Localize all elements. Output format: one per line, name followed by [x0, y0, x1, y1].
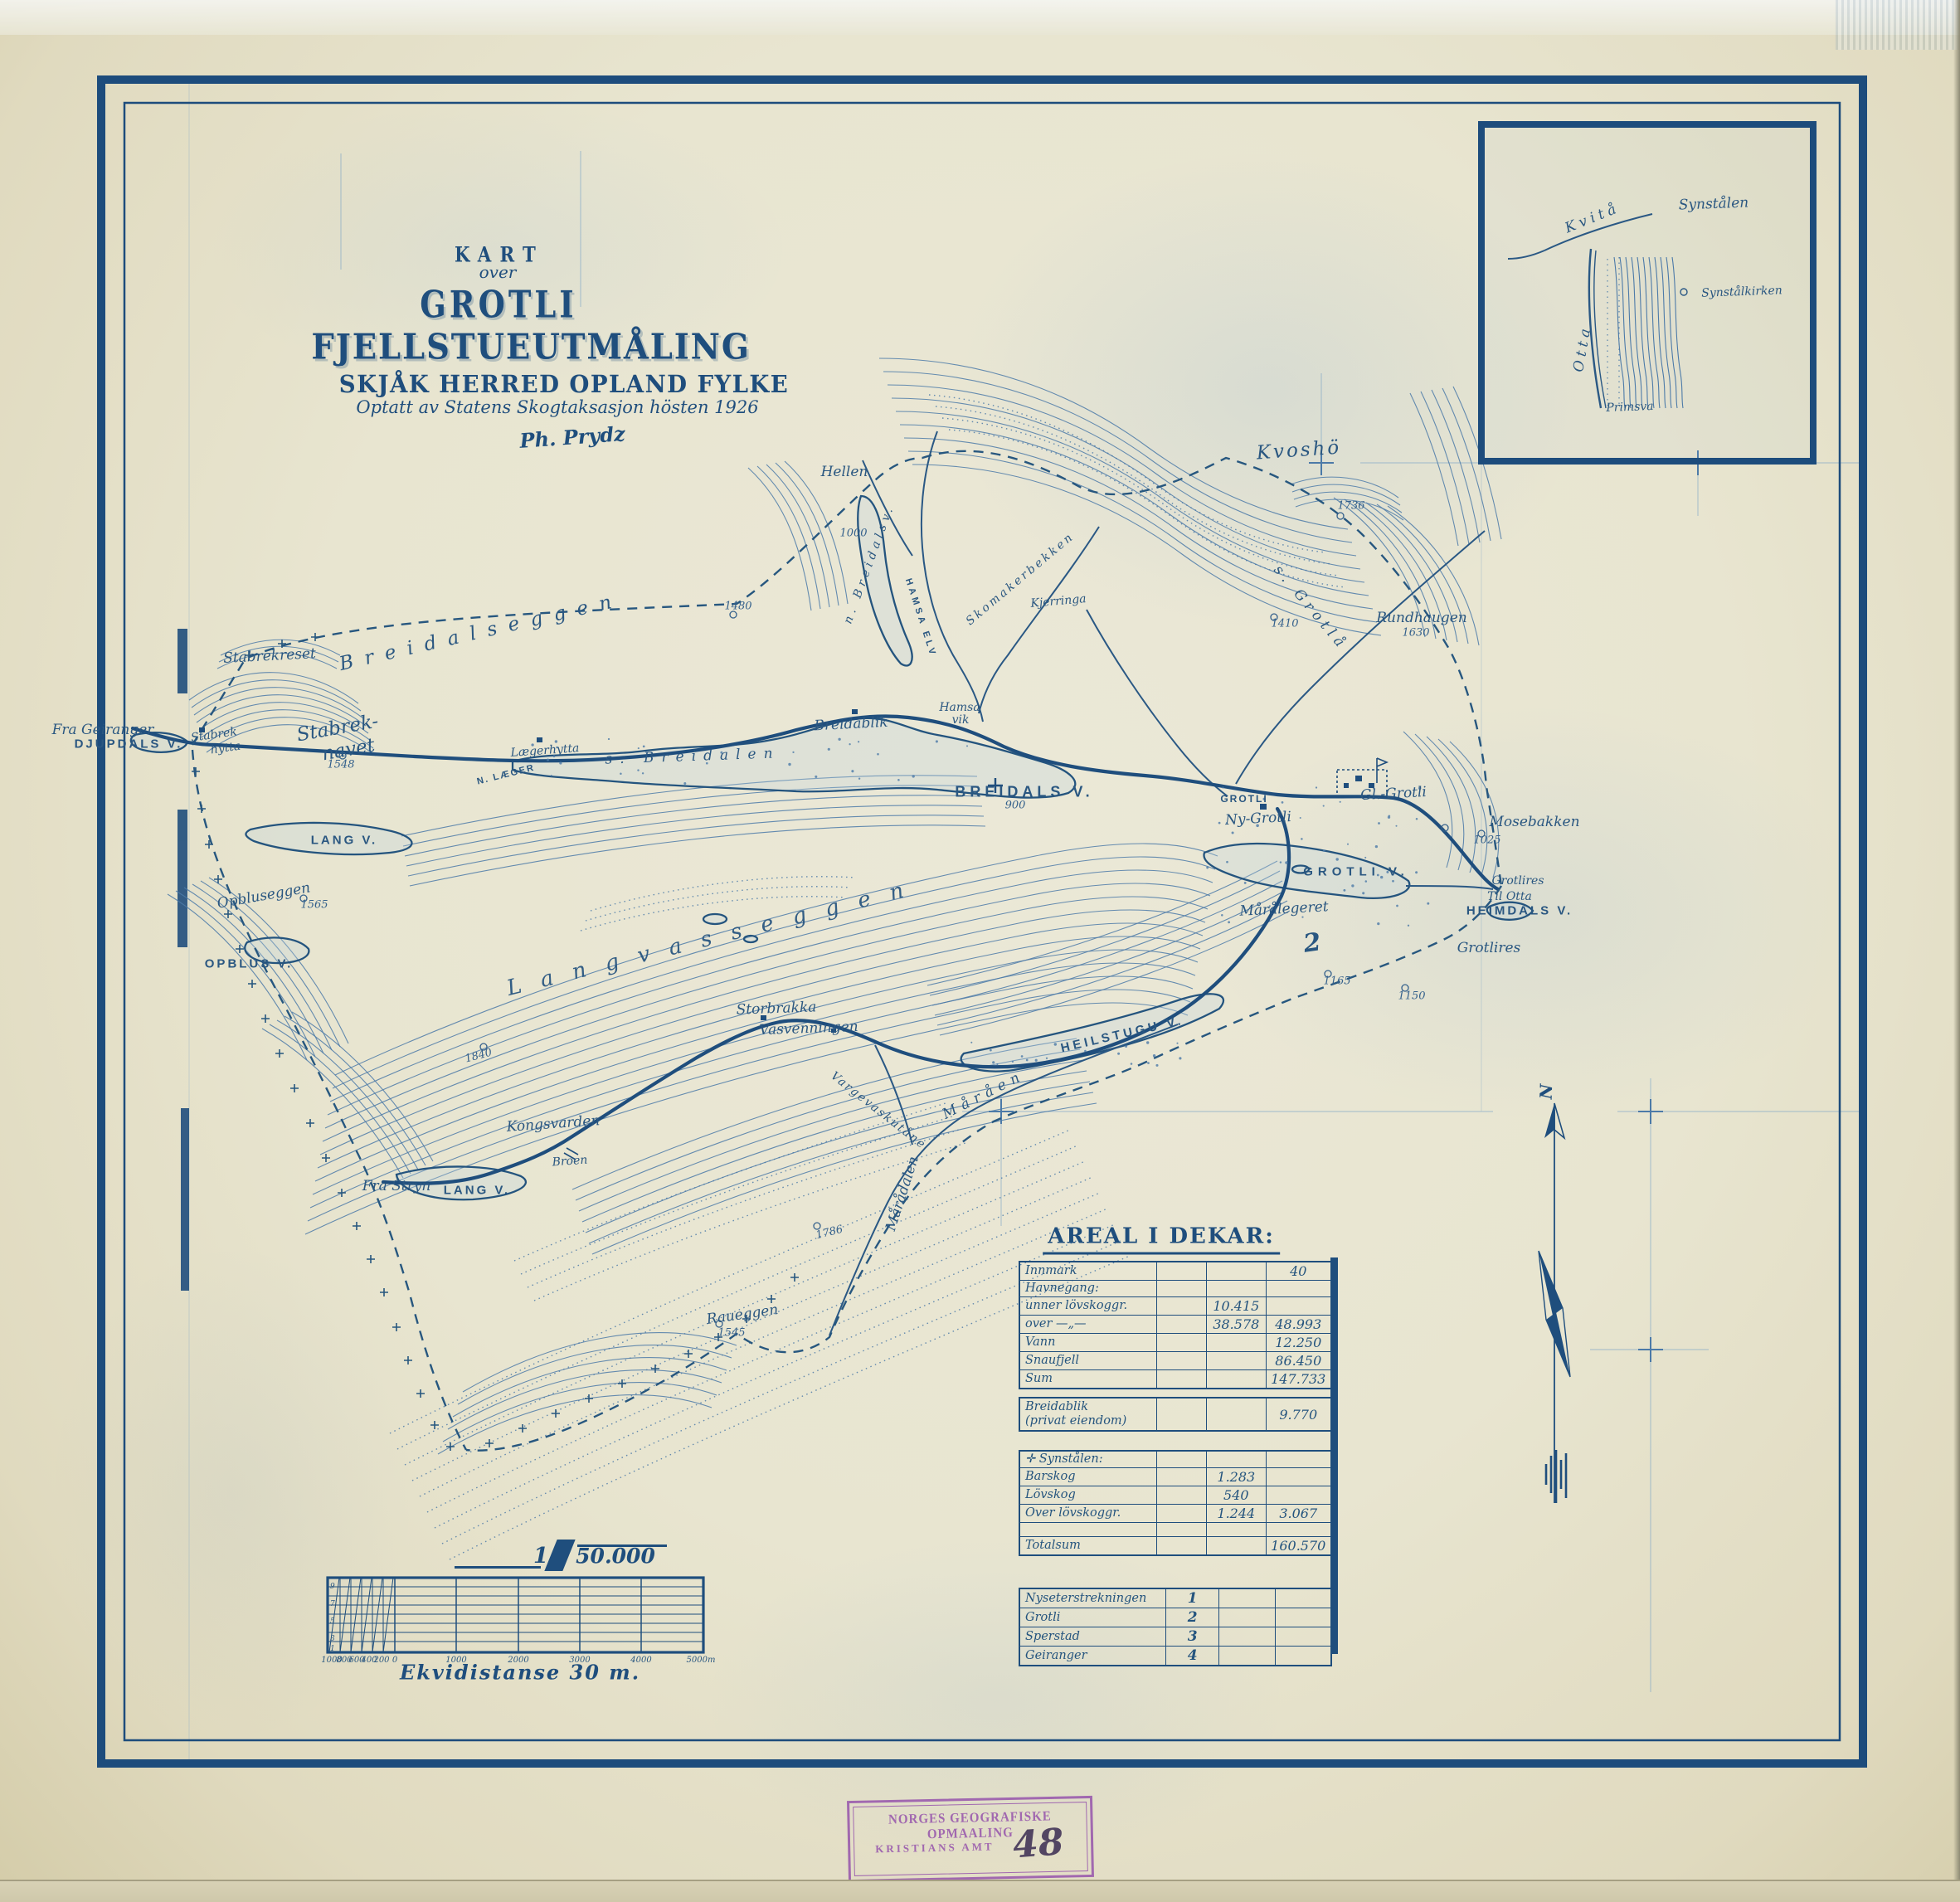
- map-label: 1630: [1402, 627, 1429, 640]
- table-label: Totalsum: [1019, 1536, 1156, 1555]
- table-label: Sum: [1019, 1369, 1156, 1389]
- table-label: ✛ Synstålen:: [1019, 1451, 1156, 1467]
- table-value: 48.993: [1266, 1315, 1331, 1333]
- table-value: [1156, 1467, 1206, 1486]
- table-value: [1275, 1647, 1331, 1666]
- map-label: Rundhaugen: [1376, 610, 1467, 626]
- scale-tick: 5000m: [687, 1656, 716, 1665]
- table-value: 38.578: [1207, 1315, 1266, 1333]
- map-label: Broen: [552, 1154, 588, 1170]
- map-label: 1545: [717, 1327, 745, 1340]
- table-label: [1019, 1522, 1156, 1536]
- scale-tick: 1: [330, 1645, 335, 1653]
- table-value: 12.250: [1266, 1333, 1331, 1351]
- map-label: Grotlires: [1491, 874, 1544, 888]
- table-value: [1156, 1281, 1206, 1297]
- map-label: OPBLUS V.: [205, 957, 293, 971]
- scale-tick: 5: [330, 1617, 335, 1626]
- table-value: [1207, 1281, 1266, 1297]
- table-value: [1219, 1608, 1276, 1627]
- map-label: DJUPDALS V.: [75, 737, 183, 752]
- map-subtitle-survey: Optatt av Statens Skogtaksasjon hösten 1…: [356, 397, 758, 417]
- boundary-west: [192, 750, 466, 1450]
- table-value: [1207, 1351, 1266, 1369]
- map-label: 1165: [1323, 975, 1350, 988]
- table-value: [1207, 1536, 1266, 1555]
- table-value: [1219, 1647, 1276, 1666]
- areal-table-title: AREAL I DEKAR:: [1043, 1224, 1280, 1255]
- scale-tick: 9: [330, 1583, 335, 1591]
- archive-stamp: NORGES GEOGRAFISKE OPMAALING KRISTIANS A…: [847, 1796, 1094, 1882]
- areal-table-synstaalen: ✛ Synstålen:Barskog1.283Lövskog540Over l…: [1019, 1450, 1332, 1556]
- map-label: Hellen: [821, 464, 868, 480]
- paper-edge-right: [1953, 0, 1960, 1902]
- map-label: 1150: [1398, 990, 1425, 1003]
- map-label: GROTLI V.: [1303, 865, 1409, 879]
- table-label: Geiranger: [1019, 1647, 1166, 1666]
- table-value: 3.067: [1266, 1504, 1331, 1522]
- table-value: [1219, 1588, 1276, 1608]
- table-label: Barskog: [1019, 1467, 1156, 1486]
- table-label: Grotli: [1019, 1608, 1166, 1627]
- map-label: Storbrakka: [736, 999, 816, 1018]
- table-value: [1156, 1296, 1206, 1315]
- table-value: 10.415: [1207, 1296, 1266, 1315]
- map-label: Mosebakken: [1489, 814, 1579, 830]
- scale-ratio-rule-right: [577, 1544, 667, 1547]
- map-label: 1736: [1337, 500, 1364, 513]
- table-label: Vann: [1019, 1333, 1156, 1351]
- table-value: [1156, 1451, 1206, 1467]
- scale-tick: 7: [330, 1600, 335, 1608]
- stamp-number: 48: [1011, 1821, 1065, 1866]
- map-label: Grotlires: [1457, 940, 1521, 956]
- map-label: 1000: [839, 528, 867, 540]
- map-label: Fra Stryn: [362, 1178, 431, 1194]
- map-label: Hamsa: [939, 701, 980, 714]
- boundary-north: [192, 451, 1501, 886]
- map-label: Primsva: [1606, 400, 1654, 415]
- table-value: [1207, 1369, 1266, 1389]
- map-label: LANG V.: [444, 1184, 510, 1198]
- table-accent-bar: [1330, 1257, 1338, 1654]
- scale-ratio-denominator: 50.000: [576, 1544, 655, 1569]
- map-title-over: over: [479, 262, 517, 282]
- table-value: 86.450: [1266, 1351, 1331, 1369]
- north-arrow: [1539, 1103, 1570, 1503]
- river-hamsa: [922, 431, 983, 722]
- paper-edge-bottom: [0, 1880, 1960, 1902]
- map-label: Vasvenningen: [759, 1019, 858, 1039]
- scale-ratio-rule-left: [455, 1566, 541, 1569]
- table-value: [1156, 1333, 1206, 1351]
- map-label: 900: [1005, 800, 1026, 812]
- table-value: [1156, 1398, 1206, 1431]
- table-value: [1156, 1369, 1206, 1389]
- table-value: [1275, 1627, 1331, 1647]
- table-value: 1: [1166, 1588, 1219, 1608]
- map-label: 1548: [327, 759, 354, 771]
- map-label: Synstålen: [1679, 195, 1749, 214]
- map-label: BREIDALS V.: [955, 784, 1093, 801]
- table-label: Nyseterstrekningen: [1019, 1588, 1166, 1608]
- areal-table-legend: Nyseterstrekningen1Grotli2Sperstad3Geira…: [1019, 1588, 1332, 1666]
- table-value: [1207, 1451, 1266, 1467]
- lake-heilstuguvatn: [961, 994, 1223, 1071]
- map-label: 2: [1301, 927, 1323, 959]
- map-label: Ny-Grotli: [1225, 809, 1292, 829]
- map-label: 1565: [300, 899, 328, 912]
- table-value: [1219, 1627, 1276, 1647]
- table-value: [1266, 1467, 1331, 1486]
- table-label: unner lövskoggr.: [1019, 1296, 1156, 1315]
- table-value: [1266, 1486, 1331, 1504]
- table-label: over —„—: [1019, 1315, 1156, 1333]
- map-label: GROTLI: [1220, 793, 1267, 805]
- table-value: [1275, 1608, 1331, 1627]
- table-value: [1207, 1398, 1266, 1431]
- map-label: LANG V.: [311, 834, 377, 848]
- river-otta-outlet: [1406, 886, 1493, 889]
- map-label: 1480: [724, 601, 751, 613]
- table-label: Lövskog: [1019, 1486, 1156, 1504]
- areal-table-main: Innmark40Havnegang:unner lövskoggr.10.41…: [1019, 1261, 1332, 1389]
- map-label: Til Otta: [1487, 890, 1532, 903]
- river-kjerring: [1087, 610, 1228, 796]
- table-value: [1266, 1281, 1331, 1297]
- map-artwork: [0, 0, 1960, 1902]
- table-value: [1156, 1504, 1206, 1522]
- scale-tick: 3: [330, 1635, 335, 1643]
- table-value: [1266, 1522, 1331, 1536]
- table-value: 1.283: [1207, 1467, 1266, 1486]
- table-label: Breidablik (privat eiendom): [1019, 1398, 1156, 1431]
- map-symbols: [199, 513, 1485, 1327]
- table-label: Snaufjell: [1019, 1351, 1156, 1369]
- table-value: 4: [1166, 1647, 1219, 1666]
- table-value: 2: [1166, 1608, 1219, 1627]
- table-value: 9.770: [1266, 1398, 1331, 1431]
- table-value: [1207, 1522, 1266, 1536]
- map-sheet: KART over GROTLI FJELLSTUEUTMÅLING SKJÅK…: [0, 0, 1960, 1902]
- map-subtitle-region: SKJÅK HERRED OPLAND FYLKE: [339, 370, 789, 398]
- meridian-emphasis-bars: [178, 629, 189, 1291]
- map-title-grotli: GROTLI: [420, 283, 577, 327]
- table-value: [1156, 1262, 1206, 1281]
- map-label: vik: [952, 713, 970, 727]
- table-label: Innmark: [1019, 1262, 1156, 1281]
- table-value: [1156, 1486, 1206, 1504]
- map-label: Synstålkirken: [1701, 284, 1782, 299]
- table-value: 540: [1207, 1486, 1266, 1504]
- table-value: [1266, 1296, 1331, 1315]
- north-arrow-hatches: [1546, 1450, 1566, 1503]
- table-label: Sperstad: [1019, 1627, 1166, 1647]
- table-value: 160.570: [1266, 1536, 1331, 1555]
- table-value: 40: [1266, 1262, 1331, 1281]
- table-value: [1275, 1588, 1331, 1608]
- table-value: 3: [1166, 1627, 1219, 1647]
- map-label: Gl.-Grotli: [1360, 784, 1427, 804]
- table-label: Over lövskoggr.: [1019, 1504, 1156, 1522]
- table-value: [1207, 1262, 1266, 1281]
- north-arrow-label: N: [1536, 1083, 1557, 1099]
- table-label: Havnegang:: [1019, 1281, 1156, 1297]
- map-label: HEIMDALS V.: [1466, 904, 1573, 918]
- scale-bar: [328, 1578, 703, 1652]
- table-value: [1207, 1333, 1266, 1351]
- map-label: 1025: [1473, 834, 1500, 847]
- map-label: 1410: [1271, 618, 1298, 630]
- table-value: [1266, 1451, 1331, 1467]
- scale-tick: 200: [373, 1656, 389, 1665]
- map-label: Fra Geiranger: [52, 722, 154, 738]
- table-value: 147.733: [1266, 1369, 1331, 1389]
- map-title-fjellstueutmaaling: FJELLSTUEUTMÅLING: [311, 327, 750, 367]
- table-value: [1156, 1522, 1206, 1536]
- table-value: [1156, 1351, 1206, 1369]
- stamp-county: KRISTIANS AMT: [875, 1840, 995, 1856]
- table-value: [1156, 1315, 1206, 1333]
- scale-tick: 0: [392, 1656, 397, 1665]
- equidistance-note: Ekvidistanse 30 m.: [400, 1661, 640, 1685]
- table-value: 1.244: [1207, 1504, 1266, 1522]
- areal-table-breidablik: Breidablik (privat eiendom)9.770: [1019, 1397, 1332, 1432]
- table-value: [1156, 1536, 1206, 1555]
